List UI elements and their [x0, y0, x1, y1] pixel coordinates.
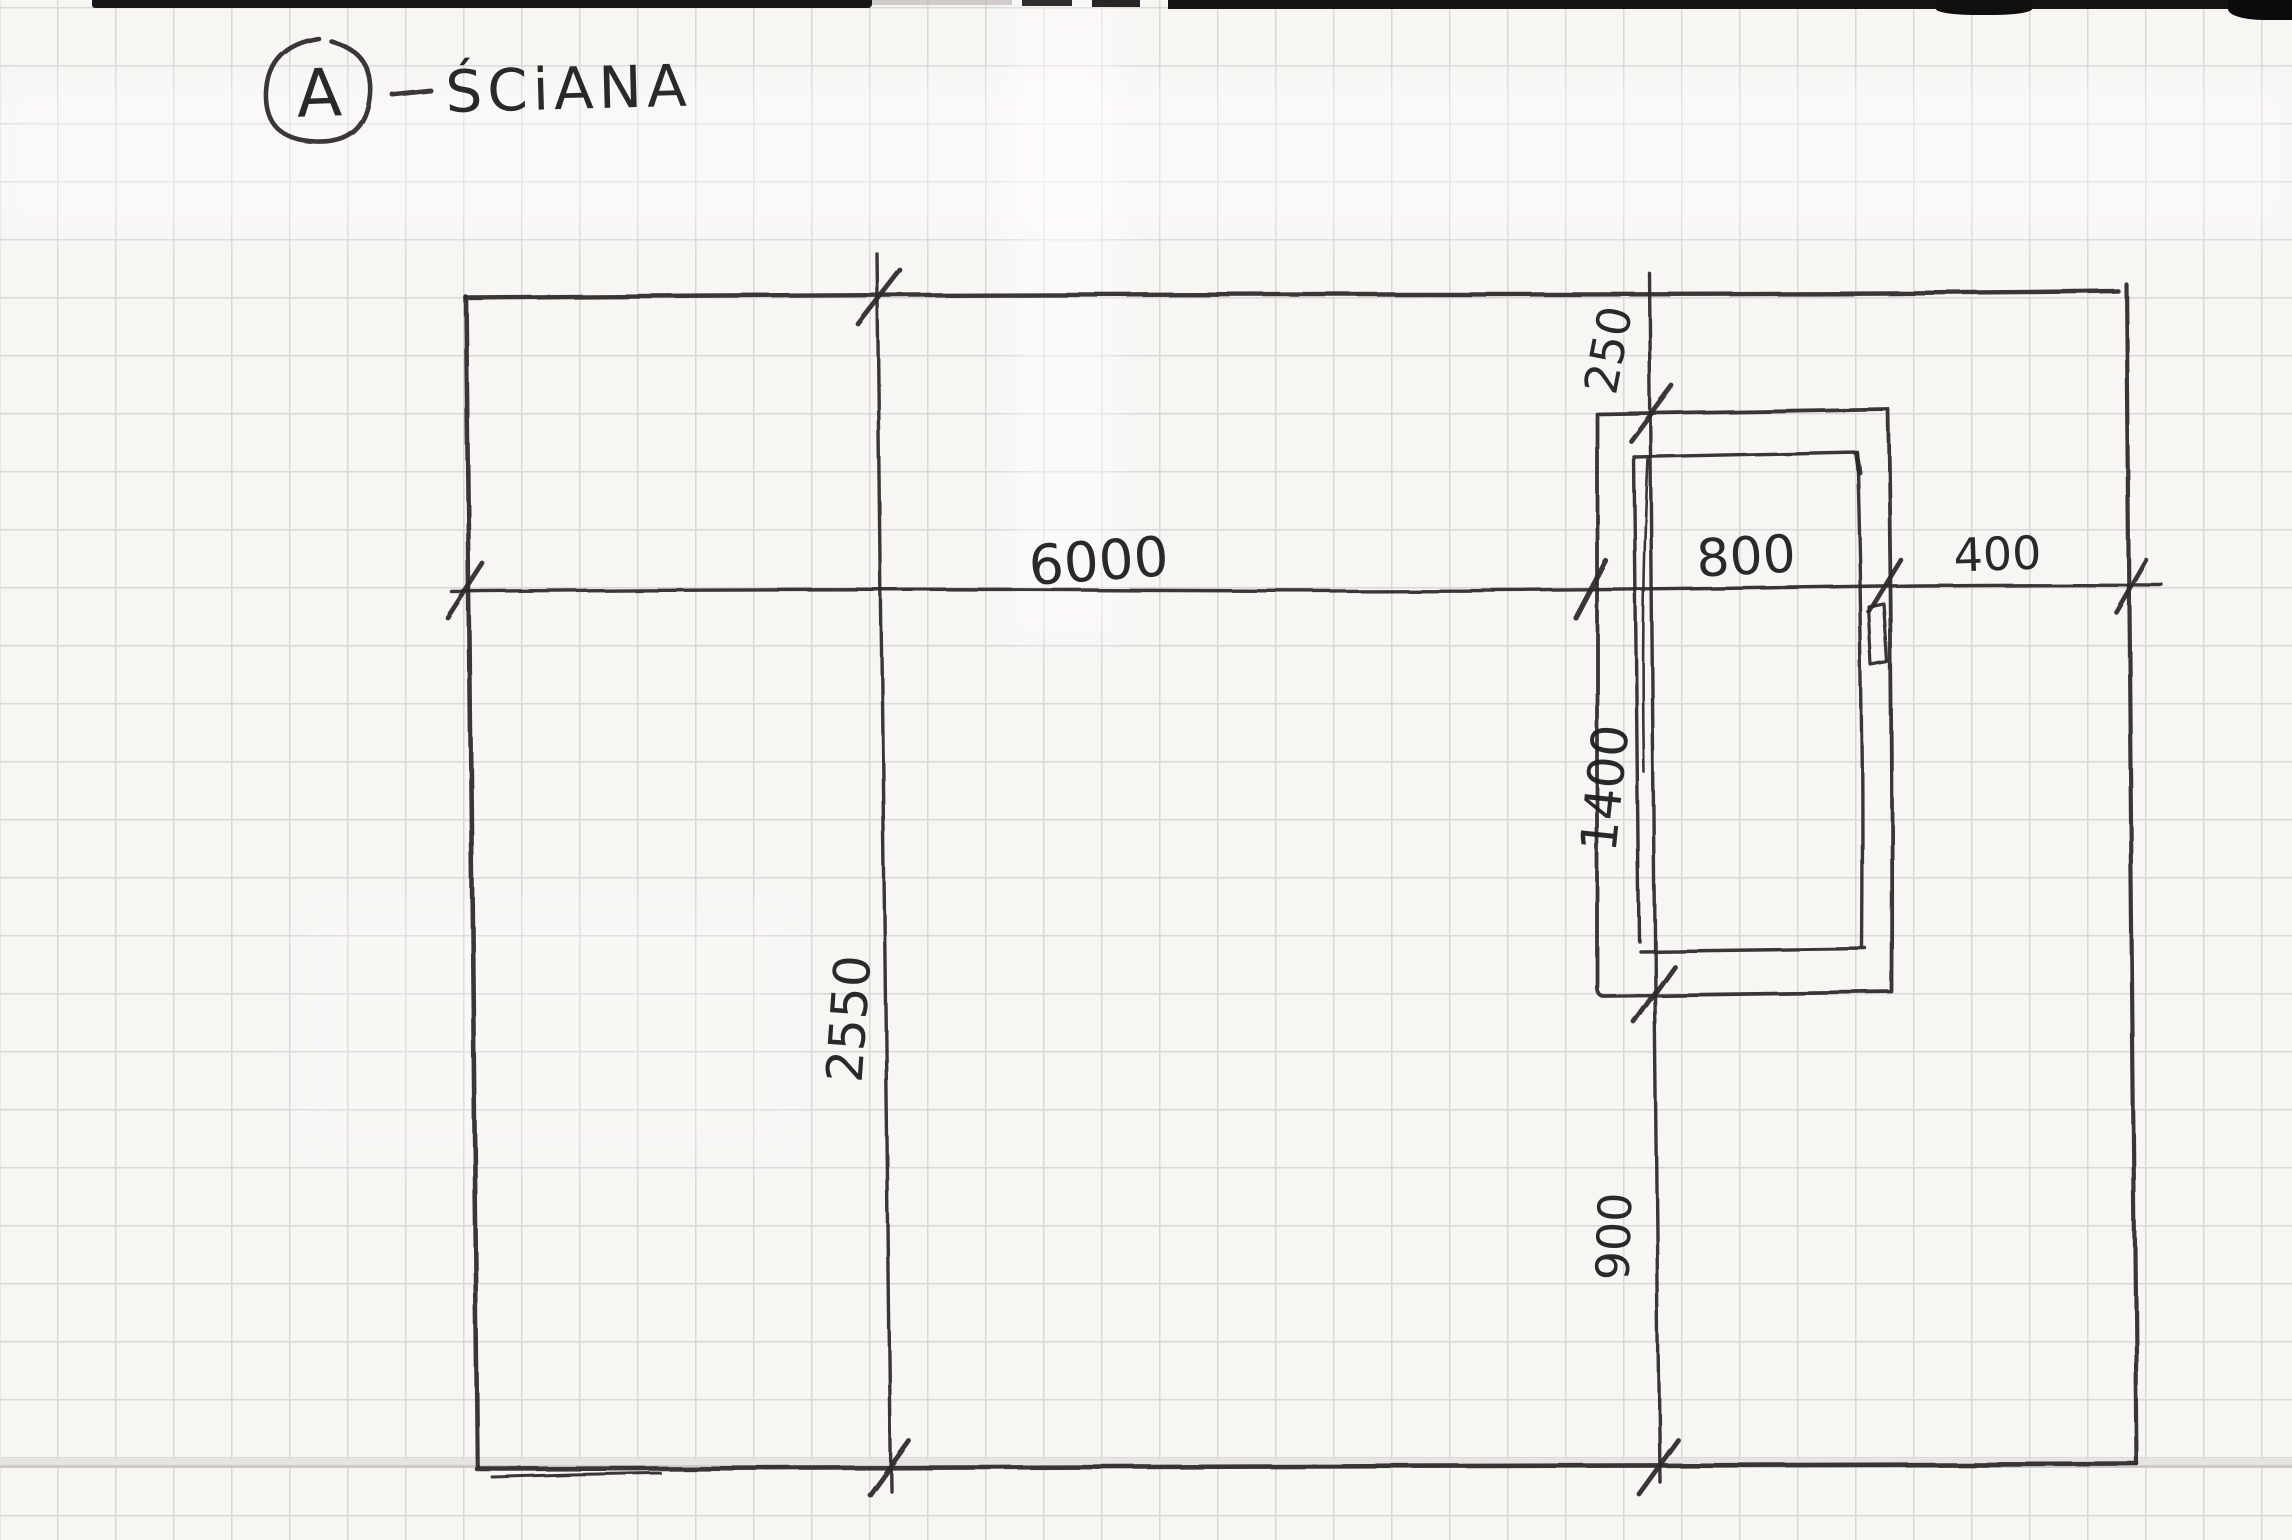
title-marker-letter: A: [295, 54, 343, 133]
wall-sketch-drawing: A ŚCiANA 6000 800 400 2550 250 1400 900: [0, 0, 2292, 1540]
graph-paper-sheet: A ŚCiANA 6000 800 400 2550 250 1400 900: [0, 0, 2292, 1540]
window-inner-corner-mark: [1856, 453, 1859, 472]
dim-label-wall-length: 6000: [1027, 524, 1171, 598]
wall-bottom-line: [477, 1464, 2137, 1469]
dim-line-vertical-window: [1649, 273, 1660, 1482]
wall-left-line: [466, 297, 478, 1467]
title-dash: [392, 90, 430, 94]
dim-label-window-width: 800: [1695, 524, 1797, 589]
wall-top-line: [466, 291, 2118, 298]
title-label: ŚCiANA: [445, 51, 693, 126]
dim-label-wall-height: 2550: [816, 953, 883, 1084]
window-handle: [1869, 604, 1888, 666]
dim-label-window-bottom-offset: 900: [1585, 1192, 1642, 1282]
window-outer-frame: [1597, 409, 1892, 996]
dim-label-window-height: 1400: [1570, 722, 1641, 855]
dim-label-window-right-offset: 400: [1953, 525, 2043, 582]
dim-line-vertical-left: [877, 254, 891, 1491]
wall-right-line: [2126, 284, 2137, 1464]
dim-line-horizontal: [452, 585, 2162, 592]
wall-bottom-doubled-stroke: [492, 1473, 660, 1477]
dim-label-window-top-offset: 250: [1573, 302, 1643, 399]
window-inner-doubled-edge: [1643, 458, 1648, 772]
